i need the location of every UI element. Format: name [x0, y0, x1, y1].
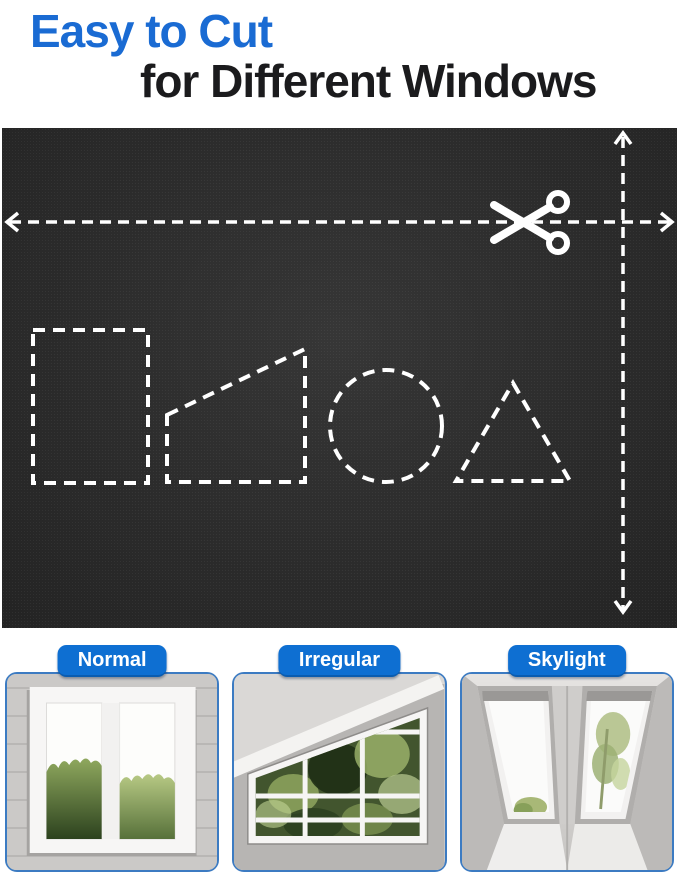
cut-shape-trapezoid — [167, 349, 305, 482]
card-label-badge: Skylight — [508, 645, 626, 677]
card-irregular-window: Irregular — [232, 672, 446, 872]
cut-guides-overlay — [2, 128, 677, 628]
page-title-line1: Easy to Cut — [30, 6, 679, 56]
irregular-window-illustration — [234, 674, 444, 870]
card-label-badge: Irregular — [279, 645, 400, 677]
cut-shape-rectangle — [33, 330, 148, 483]
normal-window-photo — [7, 674, 217, 870]
card-label-badge: Normal — [58, 645, 167, 677]
cut-shape-circle — [330, 370, 442, 482]
card-skylight-window: Skylight — [460, 672, 674, 872]
page-root: Easy to Cut for Different Windows — [0, 0, 679, 872]
header: Easy to Cut for Different Windows — [0, 0, 679, 106]
skylight-window-illustration — [462, 674, 672, 870]
page-title-line2: for Different Windows — [140, 56, 679, 106]
window-type-cards: Normal — [0, 672, 679, 872]
skylight-window-photo — [462, 674, 672, 870]
card-normal-window: Normal — [5, 672, 219, 872]
irregular-window-photo — [234, 674, 444, 870]
fabric-panel — [2, 128, 677, 628]
normal-window-illustration — [7, 674, 217, 870]
cut-shape-triangle — [456, 383, 570, 481]
